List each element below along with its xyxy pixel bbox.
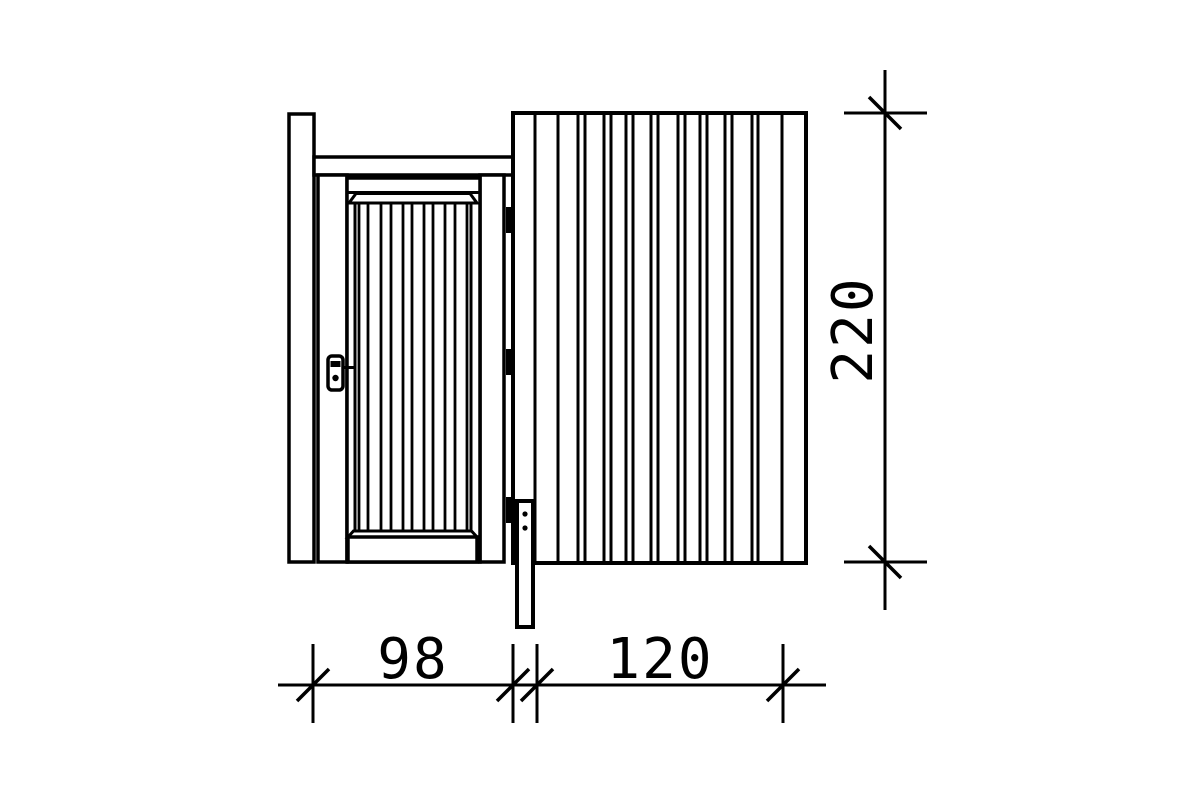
keyhole-dot <box>332 375 338 381</box>
center-post-body <box>517 501 533 627</box>
dimension-label-overall-height: 220 <box>821 276 886 383</box>
dimension-vertical: 220 <box>821 70 927 610</box>
door-leaf <box>347 178 480 562</box>
screw-dot <box>522 525 527 530</box>
wall-panel <box>513 113 806 563</box>
door-bottom-rail <box>348 537 477 562</box>
dimension-horizontal: 98 120 <box>278 627 826 723</box>
lock-latch <box>331 361 341 367</box>
left-post <box>289 114 314 562</box>
door-hinge <box>506 207 513 233</box>
drawing-canvas: 98 120 220 <box>0 0 1200 800</box>
top-rail <box>314 157 513 175</box>
door-hinge <box>506 497 513 523</box>
screw-dot <box>522 511 527 516</box>
elevation-drawing: 98 120 220 <box>0 0 1200 800</box>
center-post <box>517 501 533 627</box>
door-frame-right-stile <box>480 175 504 562</box>
dimension-label-door-width: 98 <box>377 627 448 692</box>
door-hinge <box>506 349 513 375</box>
dimension-label-panel-width: 120 <box>606 627 713 692</box>
